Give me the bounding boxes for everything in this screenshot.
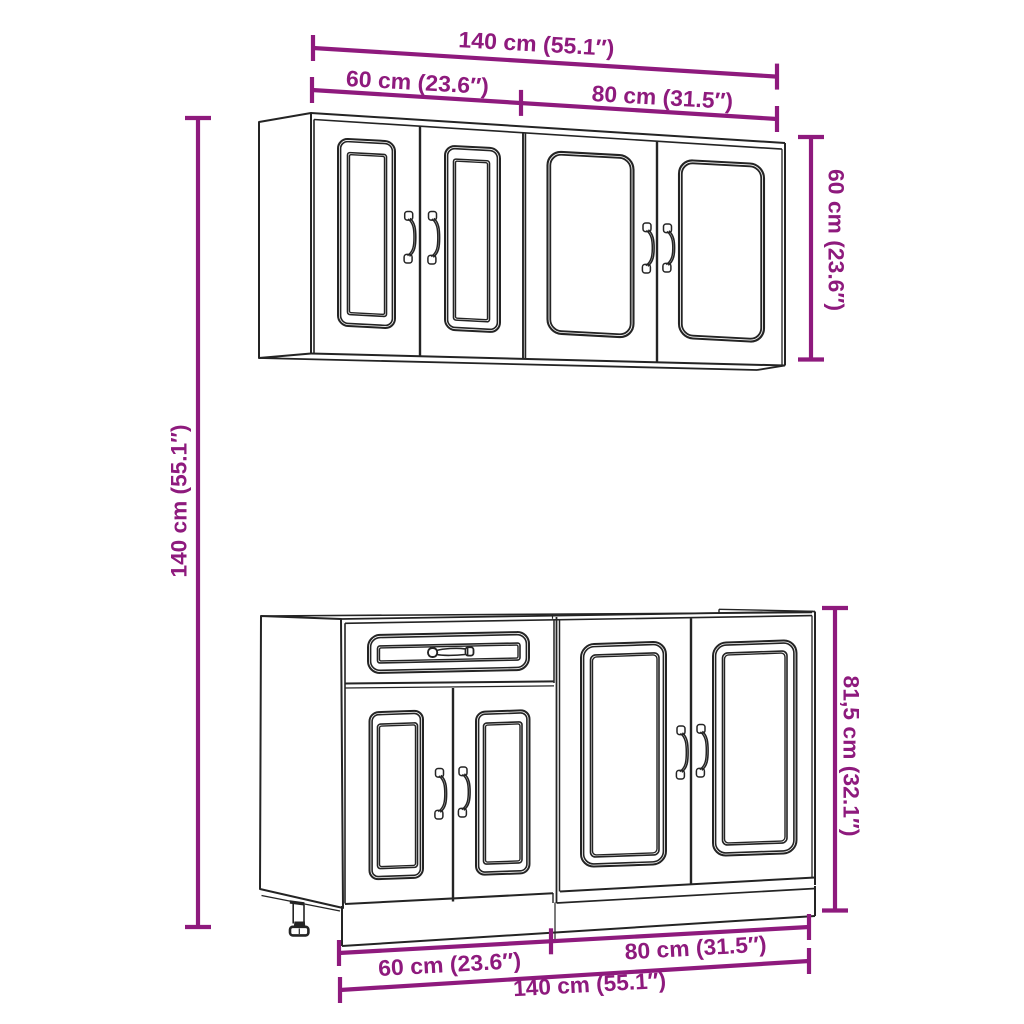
svg-text:140 cm (55.1″): 140 cm (55.1″) — [513, 968, 667, 1002]
svg-text:140 cm (55.1″): 140 cm (55.1″) — [458, 27, 615, 61]
svg-text:81,5 cm (32.1″): 81,5 cm (32.1″) — [839, 676, 864, 837]
svg-text:60 cm (23.6″): 60 cm (23.6″) — [377, 948, 521, 981]
svg-text:60 cm (23.6″): 60 cm (23.6″) — [824, 169, 849, 311]
svg-text:140 cm (55.1″): 140 cm (55.1″) — [167, 425, 192, 578]
